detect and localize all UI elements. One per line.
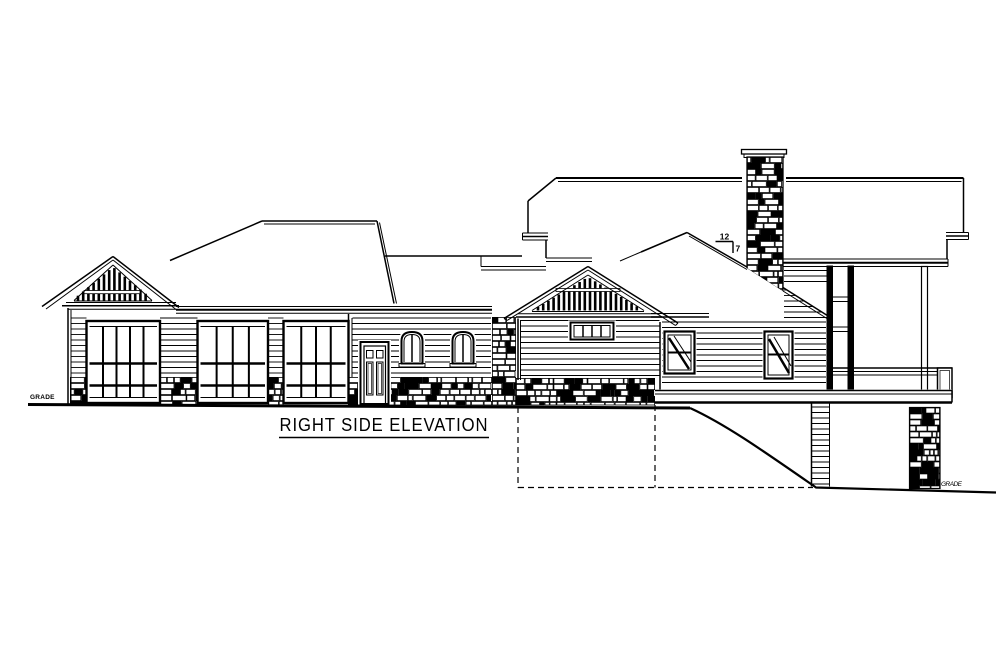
- middle-hip-roof: [385, 256, 546, 270]
- pitch-run: 12: [720, 232, 730, 242]
- entry-door: [358, 340, 391, 405]
- foundation-dashed-outline: [518, 405, 813, 488]
- grade-label-left: GRADE: [30, 394, 55, 401]
- drawing-sheet: GRADE GRADE 12 7 RIGHT SIDE ELEVATION: [0, 0, 1000, 667]
- grade-label-right: GRADE: [941, 481, 963, 488]
- garage-window-wall: [87, 321, 349, 403]
- elevation-drawing: GRADE GRADE 12 7 RIGHT SIDE ELEVATION: [0, 0, 1000, 667]
- drawing-title: RIGHT SIDE ELEVATION: [280, 415, 489, 435]
- upper-roof: [523, 178, 969, 267]
- wing-window-left: [663, 330, 697, 376]
- small-ribbon-window: [568, 321, 616, 343]
- right-gable-roof: [504, 267, 678, 326]
- chimney: [742, 150, 787, 292]
- arched-window-left: [399, 330, 425, 368]
- grade-line: [28, 405, 996, 493]
- lower-level: [812, 403, 830, 487]
- garage-hip-roof: [170, 221, 492, 313]
- left-gable-roof: [42, 257, 179, 310]
- pitch-rise: 7: [736, 244, 741, 254]
- arched-window-right: [450, 330, 476, 368]
- wing-window-right: [763, 330, 795, 381]
